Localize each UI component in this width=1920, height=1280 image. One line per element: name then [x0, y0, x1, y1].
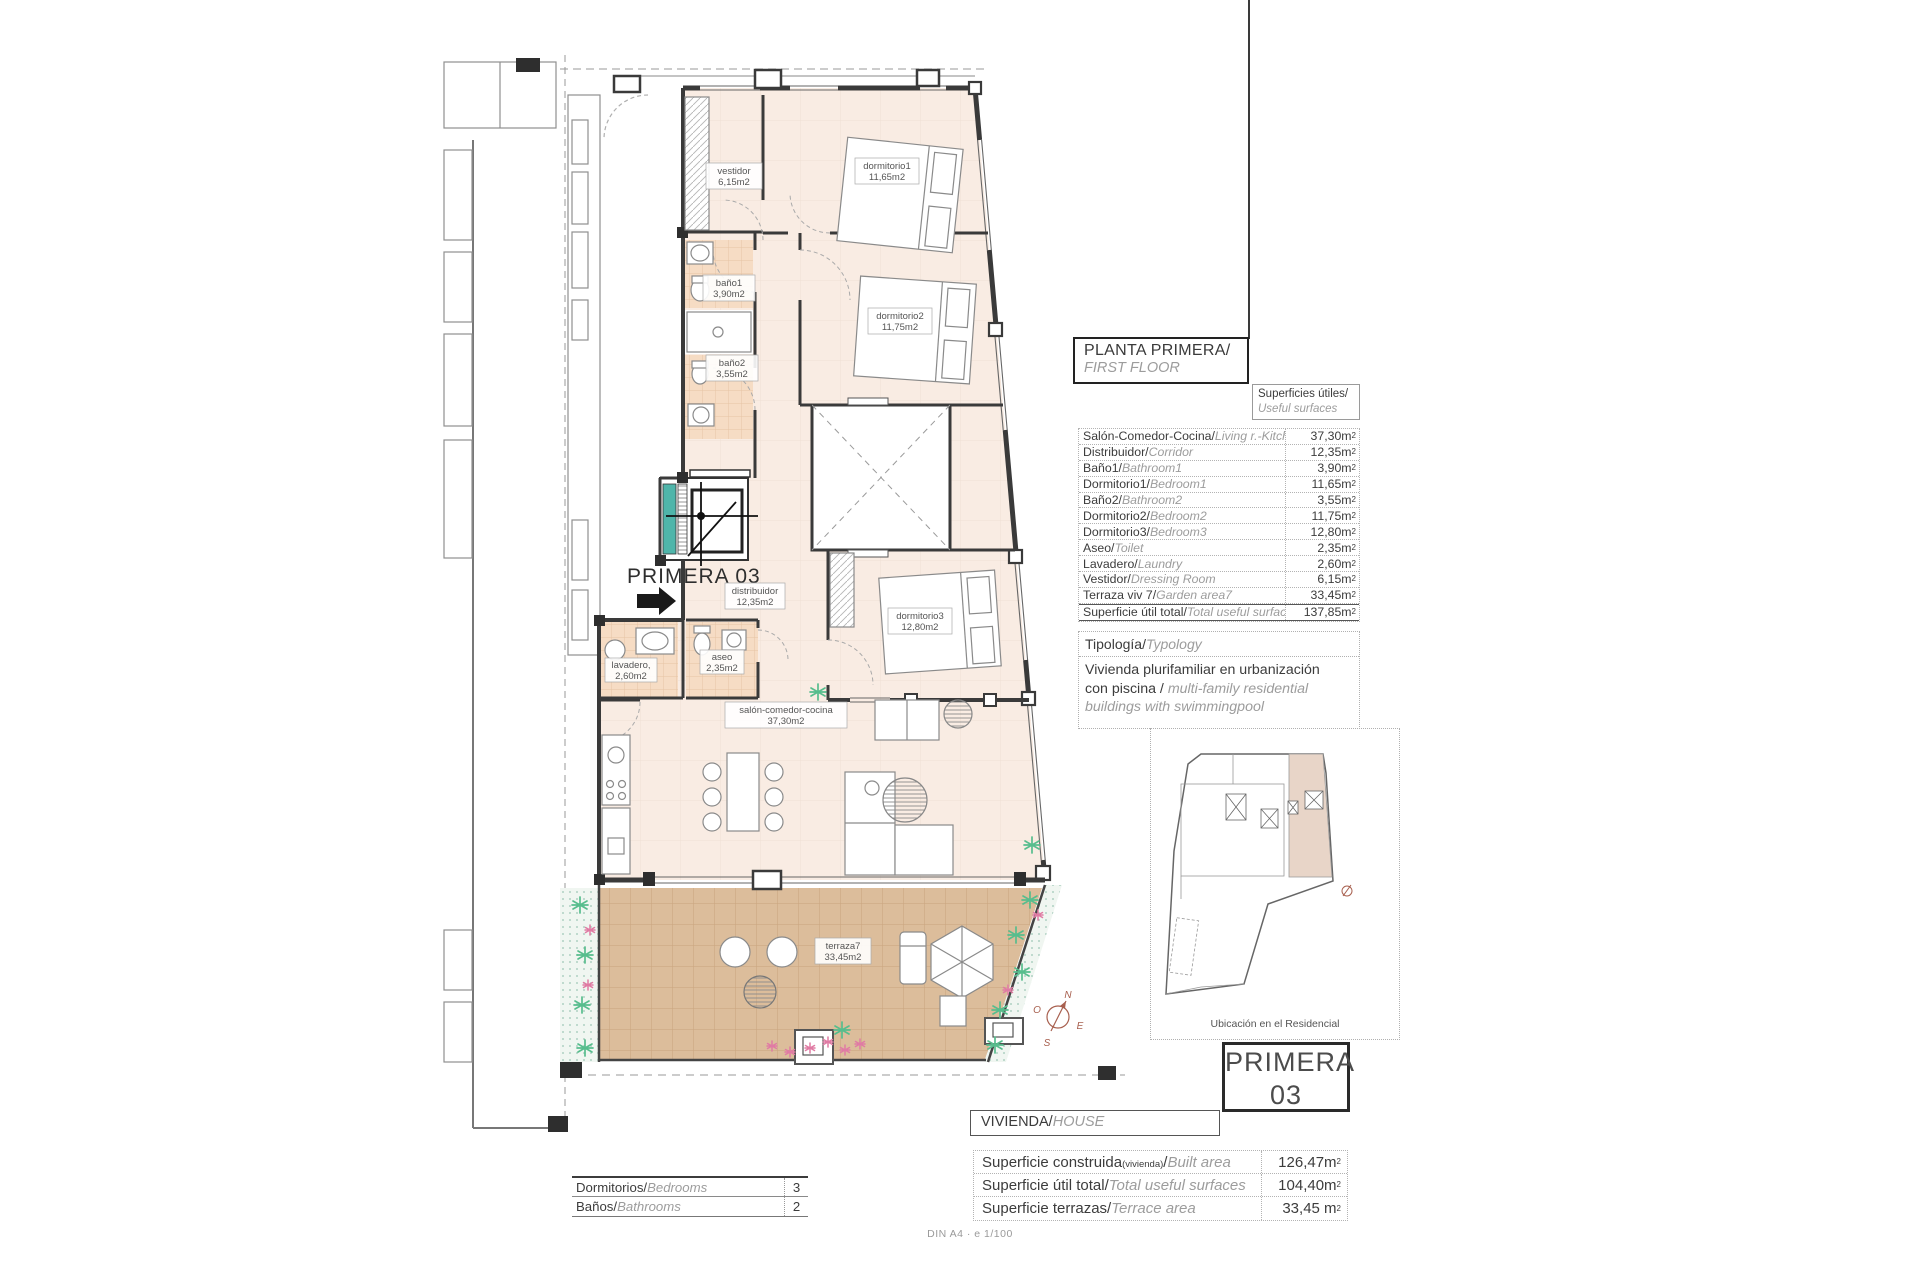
svg-text:11,65m2: 11,65m2	[869, 172, 905, 183]
useful-surfaces-label: Superficies útiles/ Useful surfaces	[1252, 384, 1360, 420]
svg-text:E: E	[1077, 1021, 1084, 1032]
svg-text:11,75m2: 11,75m2	[882, 322, 918, 333]
table-row: Aseo/Toilet2,35m2	[1079, 540, 1359, 556]
svg-text:dormitorio1: dormitorio1	[863, 161, 911, 172]
svg-text:dormitorio2: dormitorio2	[876, 311, 924, 322]
svg-text:3,55m2: 3,55m2	[716, 369, 748, 380]
round-rug	[883, 778, 927, 822]
title-block: PLANTA PRIMERA/ FIRST FLOOR	[1073, 337, 1249, 384]
floor-plan-drawing: PRIMERA 03 vestidor 6,15m2 dormitorio1 1…	[440, 50, 1130, 1160]
svg-text:dormitorio3: dormitorio3	[896, 611, 944, 622]
svg-text:terraza7: terraza7	[826, 941, 861, 952]
sun-lounger	[900, 932, 926, 984]
bed-dormitorio1	[837, 137, 963, 253]
location-diagram: Ubicación en el Residencial	[1150, 728, 1400, 1040]
bedroom3-wardrobe	[830, 553, 854, 627]
garden-strip-left	[560, 888, 598, 1062]
stairs	[663, 484, 676, 554]
svg-text:12,80m2: 12,80m2	[902, 622, 939, 633]
svg-text:2,35m2: 2,35m2	[706, 663, 738, 674]
table-row: Dormitorio2/Bedroom211,75m2	[1079, 508, 1359, 524]
svg-text:aseo: aseo	[712, 652, 733, 663]
sheet-divider-line	[1248, 0, 1250, 339]
scale-note: DIN A4 · e 1/100	[860, 1228, 1080, 1240]
svg-text:6,15m2: 6,15m2	[718, 177, 750, 188]
table-row: Baños/Bathrooms 2	[572, 1197, 808, 1216]
typology-body: Vivienda plurifamiliar en urbanización c…	[1079, 657, 1351, 721]
table-row: Vestidor/Dressing Room6,15m2	[1079, 572, 1359, 588]
table-row: Distribuidor/Corridor12,35m2	[1079, 445, 1359, 461]
room-label-dormitorio1: dormitorio1 11,65m2	[855, 158, 919, 184]
room-label-distribuidor: distribuidor 12,35m2	[725, 583, 785, 609]
program-table: Dormitorios/Bedrooms 3 Baños/Bathrooms 2	[572, 1176, 808, 1217]
house-header: VIVIENDA/HOUSE	[970, 1110, 1220, 1136]
table-row: Terraza viv 7/Garden area733,45m2	[1079, 588, 1359, 604]
location-minimap: Ubicación en el Residencial	[1151, 729, 1399, 1039]
table-row: Dormitorio3/Bedroom312,80m2	[1079, 524, 1359, 540]
table-row: Salón-Comedor-Cocina/Living r.-Kitchen37…	[1079, 429, 1359, 445]
unit-badge: PRIMERA 03	[1222, 1042, 1350, 1112]
house-summary-table: Superficie construida(vivienda)/Built ar…	[973, 1150, 1348, 1221]
table-row: Baño2/Bathroom23,55m2	[1079, 493, 1359, 509]
svg-text:33,45m2: 33,45m2	[825, 952, 862, 963]
table-row-total: Superficie útil total/Total useful surfa…	[1079, 604, 1359, 621]
svg-text:baño2: baño2	[719, 358, 745, 369]
sheet-title-es: PLANTA PRIMERA/	[1084, 342, 1238, 360]
room-label-bano1: baño1 3,90m2	[703, 275, 755, 301]
svg-text:37,30m2: 37,30m2	[768, 716, 805, 727]
table-row: Baño1/Bathroom13,90m2	[1079, 461, 1359, 477]
arrow-right-icon	[637, 587, 676, 615]
table-row: Superficie construida(vivienda)/Built ar…	[974, 1151, 1347, 1174]
svg-text:lavadero,: lavadero,	[611, 660, 650, 671]
room-label-aseo: aseo 2,35m2	[700, 650, 744, 674]
table-row: Dormitorios/Bedrooms 3	[572, 1178, 808, 1197]
typology-box: Tipología/Typology Vivienda plurifamilia…	[1078, 631, 1360, 729]
svg-text:O: O	[1033, 1005, 1041, 1016]
svg-text:12,35m2: 12,35m2	[737, 597, 774, 608]
room-label-dormitorio2: dormitorio2 11,75m2	[868, 308, 932, 334]
useful-surfaces-table: Salón-Comedor-Cocina/Living r.-Kitchen37…	[1078, 428, 1360, 622]
table-row: Superficie útil total/Total useful surfa…	[974, 1174, 1347, 1197]
svg-text:3,90m2: 3,90m2	[713, 289, 745, 300]
compass-icon: N O E S	[1033, 990, 1084, 1049]
svg-text:vestidor: vestidor	[717, 166, 750, 177]
room-label-lavadero: lavadero, 2,60m2	[605, 658, 657, 682]
svg-text:salón-comedor-cocina: salón-comedor-cocina	[739, 705, 833, 716]
courtyard	[812, 398, 950, 557]
svg-text:baño1: baño1	[716, 278, 742, 289]
room-label-salon: salón-comedor-cocina 37,30m2	[725, 702, 847, 728]
table-row: Lavadero/Laundry2,60m2	[1079, 556, 1359, 572]
dining-table	[703, 753, 783, 831]
location-caption: Ubicación en el Residencial	[1211, 1018, 1340, 1030]
stair-core	[660, 470, 758, 566]
svg-text:distribuidor: distribuidor	[732, 586, 778, 597]
table-row: Superficie terrazas/Terrace area 33,45 m…	[974, 1197, 1347, 1220]
svg-text:2,60m2: 2,60m2	[615, 671, 647, 682]
floor-plan-sheet: PRIMERA 03 vestidor 6,15m2 dormitorio1 1…	[0, 0, 1920, 1280]
room-label-terraza: terraza7 33,45m2	[815, 938, 871, 964]
svg-text:S: S	[1044, 1038, 1051, 1049]
vestidor-wardrobe	[685, 97, 709, 230]
room-label-vestidor: vestidor 6,15m2	[706, 163, 762, 189]
minimap-compass-icon	[1342, 885, 1352, 896]
svg-text:N: N	[1064, 990, 1072, 1001]
kitchen-counter	[602, 735, 630, 874]
sheet-title-en: FIRST FLOOR	[1084, 360, 1238, 376]
table-row: Dormitorio1/Bedroom111,65m2	[1079, 477, 1359, 493]
room-label-bano2: baño2 3,55m2	[706, 355, 758, 381]
typology-header: Tipología/Typology	[1079, 632, 1359, 657]
room-label-dormitorio3: dormitorio3 12,80m2	[888, 608, 952, 634]
